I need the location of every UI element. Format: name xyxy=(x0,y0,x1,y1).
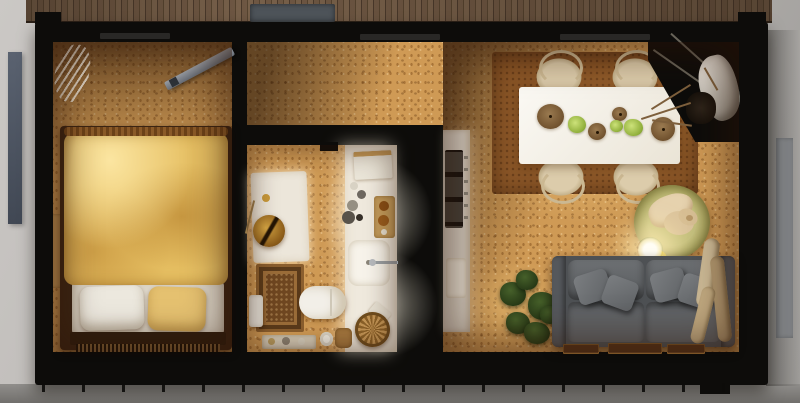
pillow-white xyxy=(79,285,144,331)
amber-bottle xyxy=(379,201,389,211)
gold-knob xyxy=(262,194,270,202)
jar xyxy=(357,190,366,199)
leaf-tuft xyxy=(524,322,550,344)
greens xyxy=(624,119,643,136)
jar xyxy=(342,211,355,224)
ornate-rug xyxy=(256,264,304,332)
window-sill xyxy=(560,34,650,40)
bottle xyxy=(298,338,305,345)
kitchen-sink xyxy=(446,258,466,298)
floor-mat xyxy=(563,344,599,354)
hallway-floor xyxy=(247,42,443,125)
pedal-bin xyxy=(249,295,263,327)
jar xyxy=(350,182,358,190)
towel-stack xyxy=(353,150,392,180)
bottle xyxy=(282,337,290,345)
leaf-tuft xyxy=(516,270,538,290)
fence-panel-left xyxy=(8,52,22,224)
jar xyxy=(347,200,358,211)
wicker-basket xyxy=(355,312,390,347)
roof-corner-right xyxy=(738,12,766,24)
pendant-bowl xyxy=(537,104,564,129)
jar xyxy=(356,214,363,221)
greens xyxy=(568,116,586,133)
window-sill xyxy=(100,33,170,39)
panel-right xyxy=(776,138,793,338)
floor-plan-render xyxy=(0,0,800,403)
small-bowl xyxy=(612,107,627,121)
gold-basin xyxy=(253,215,285,247)
cooktop xyxy=(445,150,463,228)
floor-mat xyxy=(608,343,662,354)
bottle xyxy=(268,338,275,345)
pillow-yellow xyxy=(147,286,207,332)
bottle-tray xyxy=(374,196,395,238)
duvet xyxy=(64,133,228,285)
deck-shade xyxy=(26,0,772,23)
dried-branches-vase xyxy=(686,92,716,124)
wicker-bin xyxy=(335,328,352,348)
small-jar xyxy=(381,229,387,235)
driftwood-decor xyxy=(696,238,738,348)
roof-batten-ticks xyxy=(42,383,758,392)
doormat xyxy=(250,4,335,22)
toilet xyxy=(299,286,346,319)
wall-nub xyxy=(320,142,338,151)
slatted-bench xyxy=(76,344,220,352)
faucet-head xyxy=(369,259,376,266)
roof-corner-left xyxy=(35,12,61,24)
cooktop-knobs xyxy=(464,156,468,220)
toilet-seam xyxy=(330,289,332,316)
blanket-fringe xyxy=(64,127,228,136)
small-bowl xyxy=(588,123,606,140)
paper-roll xyxy=(320,332,333,346)
dog-ear xyxy=(686,215,693,221)
amber-bottle xyxy=(378,215,389,226)
greens xyxy=(610,120,623,132)
window-sill xyxy=(360,34,440,40)
sofa-seat-cushion xyxy=(568,302,644,342)
sofa-armrest xyxy=(552,256,566,347)
